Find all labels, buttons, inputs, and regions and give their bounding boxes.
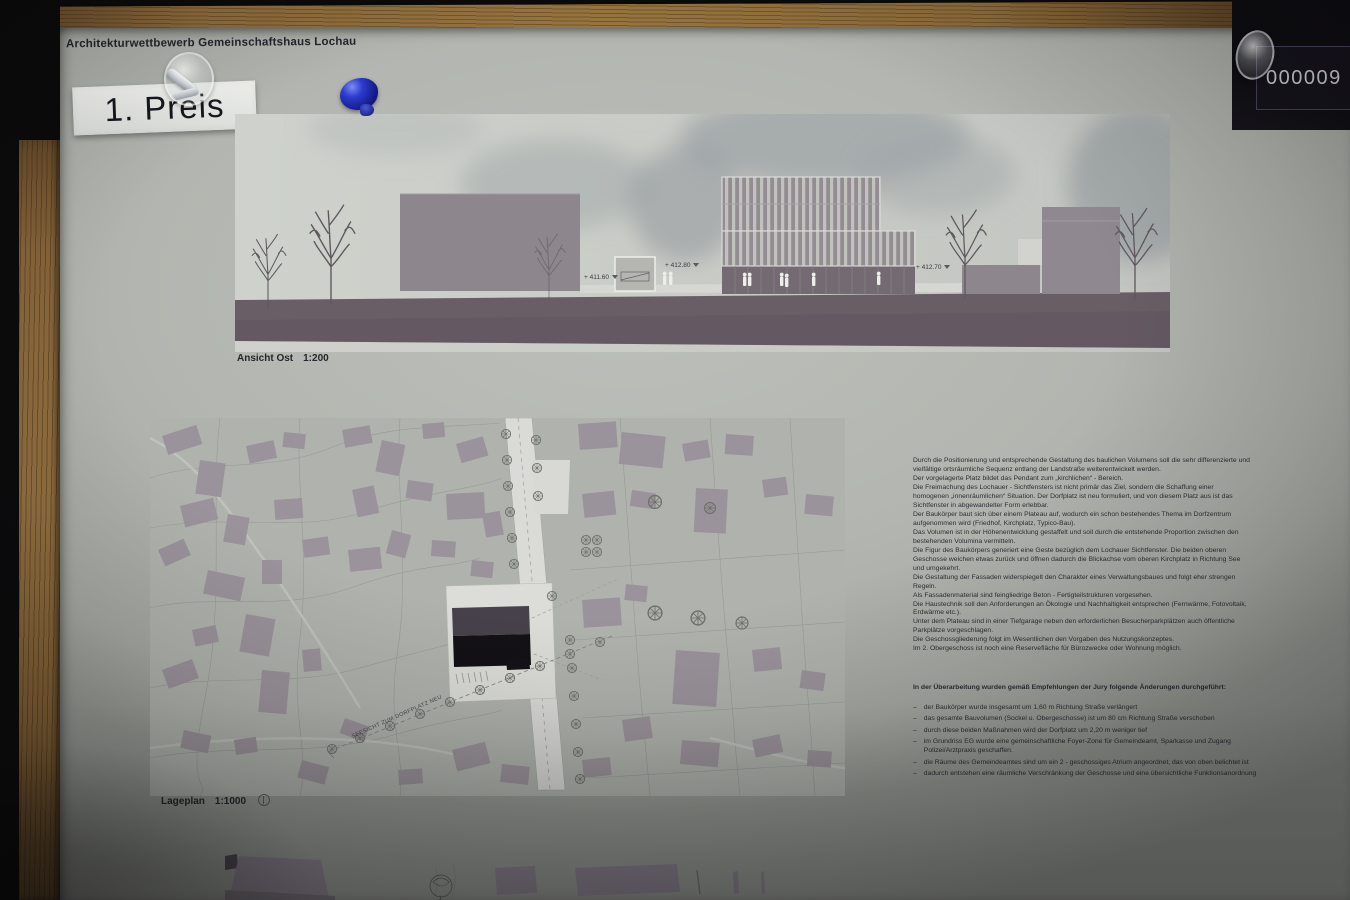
elevation-caption: Ansicht Ost1:200 bbox=[237, 353, 329, 364]
bottom-drawing-svg bbox=[225, 838, 785, 900]
photo-of-competition-board: Architekturwettbewerb Gemeinschaftshaus … bbox=[0, 0, 1350, 900]
description-line: Der vorgelagerte Platz bildet das Pendan… bbox=[913, 475, 1251, 484]
level-marker-icon bbox=[612, 275, 618, 279]
description-line: Im 2. Obergeschoss ist noch eine Reserve… bbox=[913, 645, 1251, 654]
revision-item: –dadurch entstehen eine räumliche Versch… bbox=[913, 770, 1257, 779]
level-marker-icon bbox=[944, 265, 950, 269]
blue-pushpin-icon bbox=[336, 76, 386, 120]
dark-corner-topleft bbox=[0, 0, 60, 140]
elevation-scale: 1:200 bbox=[303, 353, 329, 364]
existing-building-right bbox=[1042, 207, 1120, 294]
north-arrow-icon bbox=[258, 794, 270, 806]
existing-building-left bbox=[400, 194, 580, 291]
description-line: Als Fassadenmaterial sind feingliedrige … bbox=[913, 592, 1251, 601]
revisions-block: In der Überarbeitung wurden gemäß Empfeh… bbox=[913, 684, 1257, 782]
description-line: Der Baukörper baut sich über einem Plate… bbox=[913, 511, 1251, 529]
level-annotation: + 412.70 bbox=[916, 264, 950, 271]
siteplan-drawing: SEESICHT ZUM DORFPLATZ NEU bbox=[150, 418, 845, 796]
revision-item: –im Grundriss EG wurde eine gemeinschaft… bbox=[913, 738, 1257, 756]
description-line: Durch die Positionierung und entsprechen… bbox=[913, 457, 1251, 475]
revision-item: –durch diese beiden Maßnahmen wird der D… bbox=[913, 727, 1257, 736]
bottom-partial-drawing bbox=[225, 838, 785, 900]
poster-title: Architekturwettbewerb Gemeinschaftshaus … bbox=[66, 36, 356, 51]
wood-frame-left bbox=[19, 22, 60, 900]
elevation-svg bbox=[235, 114, 1170, 352]
revision-item: –der Baukörper wurde insgesamt um 1,60 m… bbox=[913, 704, 1257, 713]
clear-pushpin-icon bbox=[164, 52, 214, 106]
description-line: Unter dem Plateau sind in einer Tiefgara… bbox=[913, 618, 1251, 636]
existing-wall-right bbox=[962, 265, 1040, 294]
elevation-drawing: + 411.60 + 412.80 + 412.70 bbox=[235, 114, 1170, 352]
description-line: Die Figur des Baukörpers generiert eine … bbox=[913, 547, 1251, 574]
revision-item: –die Räume des Gemeindeamtes sind um ein… bbox=[913, 759, 1257, 768]
description-line: Die Haustechnik soll den Anforderungen a… bbox=[913, 601, 1251, 619]
description-line: Das Volumen ist in der Höhenentwicklung … bbox=[913, 529, 1251, 547]
revisions-heading: In der Überarbeitung wurden gemäß Empfeh… bbox=[913, 684, 1257, 693]
description-block: Durch die Positionierung und entsprechen… bbox=[913, 457, 1251, 654]
siteplan-caption: Lageplan1:1000 bbox=[161, 794, 270, 807]
level-marker-icon bbox=[693, 263, 699, 267]
revision-item: –das gesamte Bauvolumen (Sockel u. Oberg… bbox=[913, 715, 1257, 724]
siteplan-scale: 1:1000 bbox=[215, 796, 246, 807]
entry-pavilion bbox=[615, 257, 655, 291]
poster-sheet: Architekturwettbewerb Gemeinschaftshaus … bbox=[58, 28, 1350, 900]
description-line: Die Gestaltung der Fassaden widerspiegel… bbox=[913, 574, 1251, 592]
level-annotation: + 412.80 bbox=[665, 262, 699, 269]
siteplan-svg bbox=[150, 418, 845, 796]
description-line: Die Freimachung des Lochauer - Sichtfens… bbox=[913, 484, 1251, 511]
description-line: Die Geschossgliederung folgt im Wesentli… bbox=[913, 636, 1251, 645]
level-annotation: + 411.60 bbox=[584, 274, 618, 281]
small-white-building bbox=[1018, 239, 1042, 265]
